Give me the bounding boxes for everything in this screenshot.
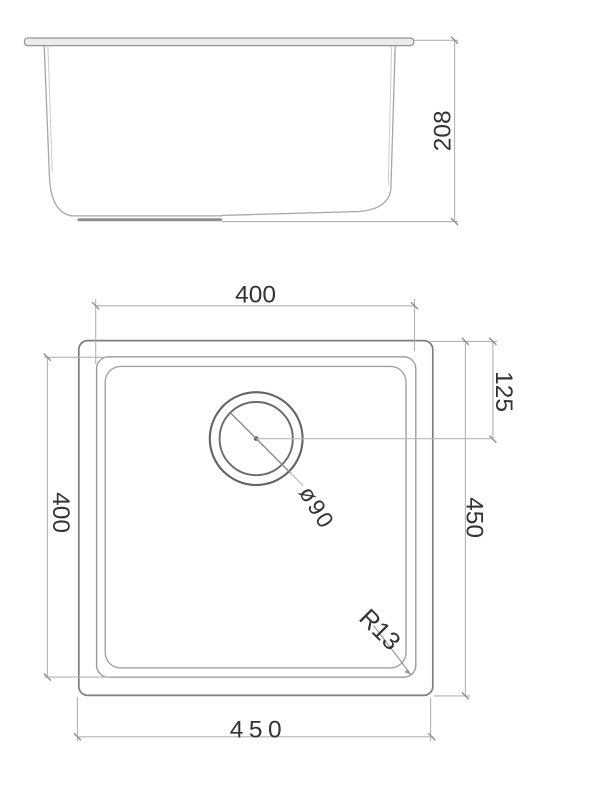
svg-text:450: 450	[230, 716, 287, 743]
svg-text:450: 450	[461, 497, 488, 538]
svg-text:400: 400	[235, 282, 276, 309]
svg-text:ø90: ø90	[294, 481, 340, 533]
svg-text:125: 125	[490, 371, 517, 412]
svg-text:208: 208	[429, 110, 456, 151]
svg-text:400: 400	[47, 492, 74, 533]
svg-text:R13: R13	[354, 604, 406, 656]
